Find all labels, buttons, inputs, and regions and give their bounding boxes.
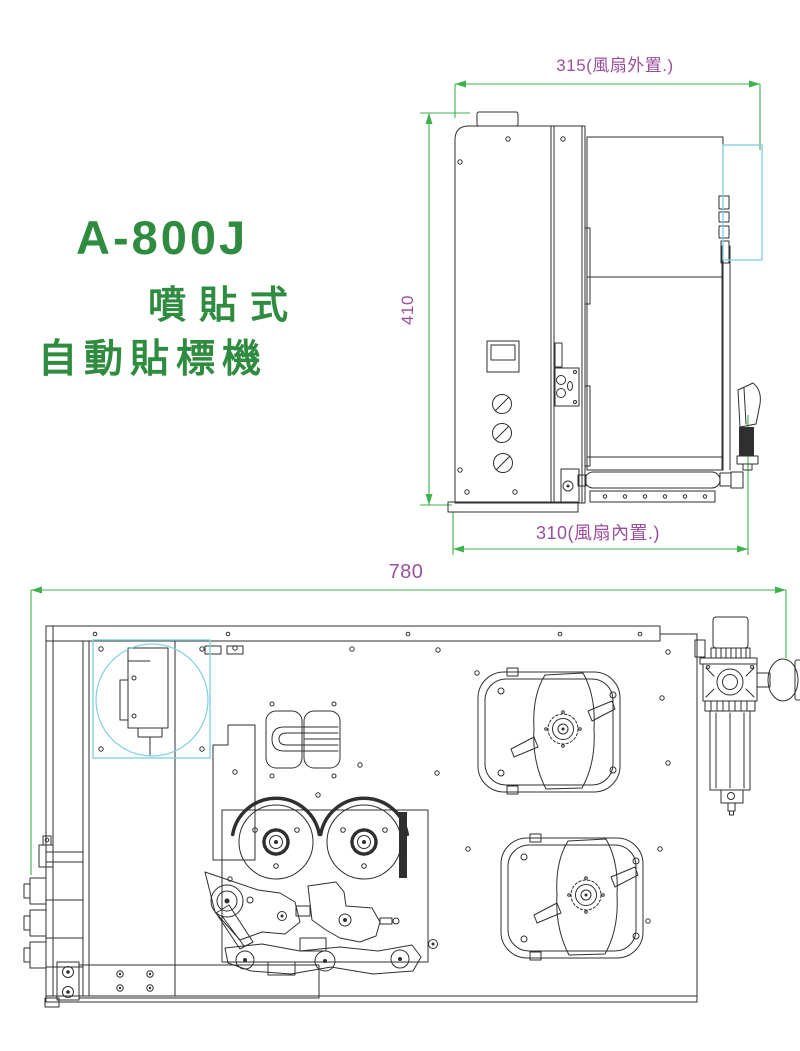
- dimension-width-external-lines: [455, 81, 760, 151]
- tension-arm: [211, 885, 253, 949]
- regulator-knob: [713, 617, 748, 648]
- rear-housing: [587, 137, 730, 470]
- label-reel-right: [327, 805, 401, 879]
- control-knobs: [493, 395, 513, 473]
- slot-plate: [266, 702, 340, 778]
- slide-rail: [578, 472, 743, 502]
- fan-motor-side: [737, 383, 760, 470]
- dimension-label-height: 410: [398, 288, 418, 332]
- internal-fan-component: [99, 647, 204, 756]
- panel-screws: [228, 646, 670, 923]
- side-hand-knob: [768, 659, 798, 701]
- fan-top-view: [478, 668, 620, 794]
- air-filter-regulator: [700, 617, 800, 815]
- side-view-machine: [448, 112, 760, 512]
- dimension-height-lines: [420, 113, 470, 505]
- top-tab: [477, 112, 518, 126]
- dimension-label-width-internal: 310(風扇內置.): [498, 519, 698, 545]
- top-view-machine: [24, 617, 800, 1007]
- fan-top-view-lower: [501, 834, 643, 960]
- dimension-label-overall-width: 780: [371, 561, 441, 584]
- dimension-label-width-external: 315(風扇外置.): [520, 51, 710, 76]
- label-dispenser-mechanism: [205, 798, 438, 975]
- technical-drawing-page: A-800J 噴貼式 自動貼標機 315(風扇外置.) 410 310(風扇內置…: [0, 0, 800, 1051]
- display-window: [487, 341, 519, 372]
- internal-fan-highlight: [93, 640, 210, 758]
- side-plate: [213, 725, 255, 860]
- connector-block: [555, 368, 579, 406]
- label-reel-left: [239, 805, 313, 879]
